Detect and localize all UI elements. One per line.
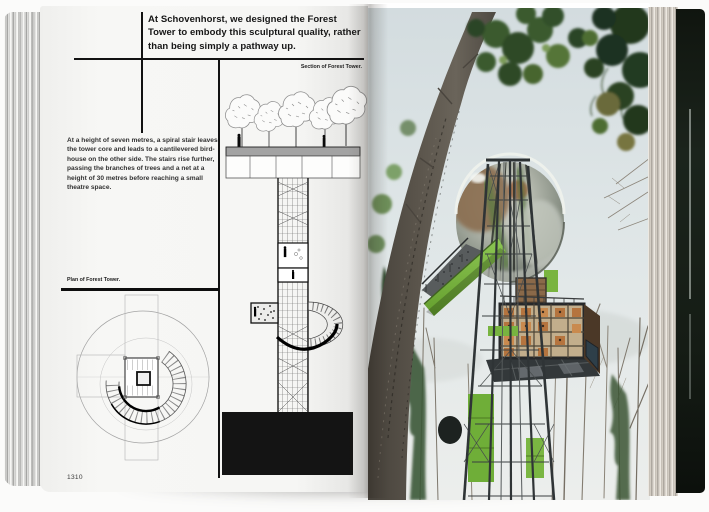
cover-highlight	[689, 109, 691, 299]
forest-tower-photo	[368, 8, 650, 500]
plan-drawing	[77, 295, 210, 460]
intro-vertical-rule	[141, 12, 143, 133]
plan-caption: Plan of Forest Tower.	[67, 277, 120, 283]
left-page: At Schovenhorst, we designed the Forest …	[40, 6, 368, 492]
book-cover-edge	[676, 9, 705, 493]
screenshot-root: { "left_page": { "intro_text": "At Schov…	[0, 0, 709, 512]
section-drawing	[222, 86, 367, 475]
intro-text: At Schovenhorst, we designed the Forest …	[148, 13, 367, 53]
right-page	[368, 3, 650, 500]
page-number: 1310	[67, 474, 83, 481]
dark-disc	[438, 416, 462, 444]
plan-section-rule	[61, 288, 219, 291]
left-page-edges	[4, 12, 44, 486]
cover-highlight	[689, 314, 691, 399]
body-text: At a height of seven metres, a spiral st…	[67, 136, 220, 192]
column-divider-rule	[218, 58, 220, 478]
figure-icon	[238, 134, 326, 147]
right-page-edges	[648, 7, 678, 496]
ground-mass	[222, 412, 353, 475]
section-caption: Section of Forest Tower.	[210, 64, 362, 70]
architectural-drawings	[40, 6, 368, 492]
